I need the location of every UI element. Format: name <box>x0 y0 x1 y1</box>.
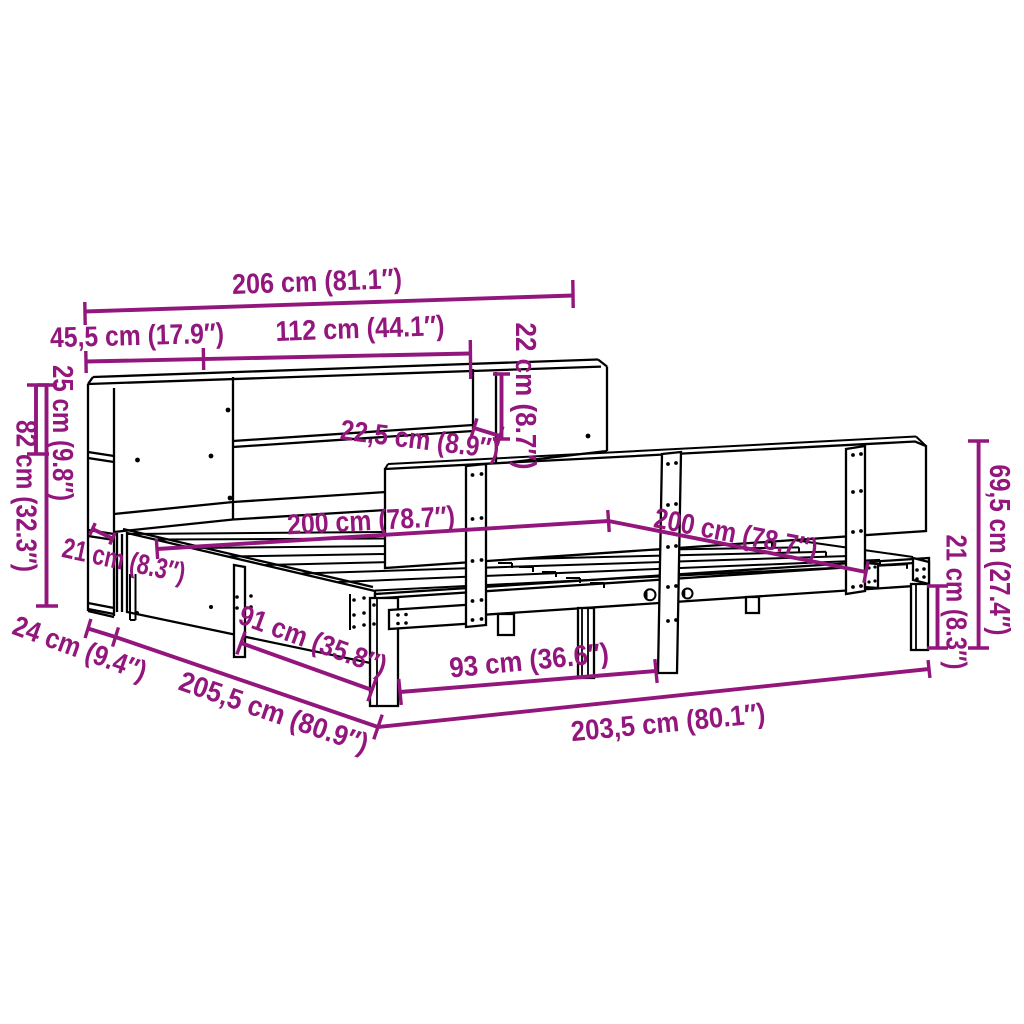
svg-text:82 cm (32.3″): 82 cm (32.3″) <box>10 420 42 572</box>
svg-text:69,5 cm (27.4″): 69,5 cm (27.4″) <box>983 465 1015 636</box>
svg-text:112 cm (44.1″): 112 cm (44.1″) <box>275 310 445 348</box>
svg-text:22 cm (8.7″): 22 cm (8.7″) <box>509 323 541 470</box>
svg-text:21 cm (8.3″): 21 cm (8.3″) <box>940 535 972 670</box>
svg-text:206 cm (81.1″): 206 cm (81.1″) <box>232 263 403 301</box>
svg-text:45,5 cm (17.9″): 45,5 cm (17.9″) <box>50 318 225 355</box>
